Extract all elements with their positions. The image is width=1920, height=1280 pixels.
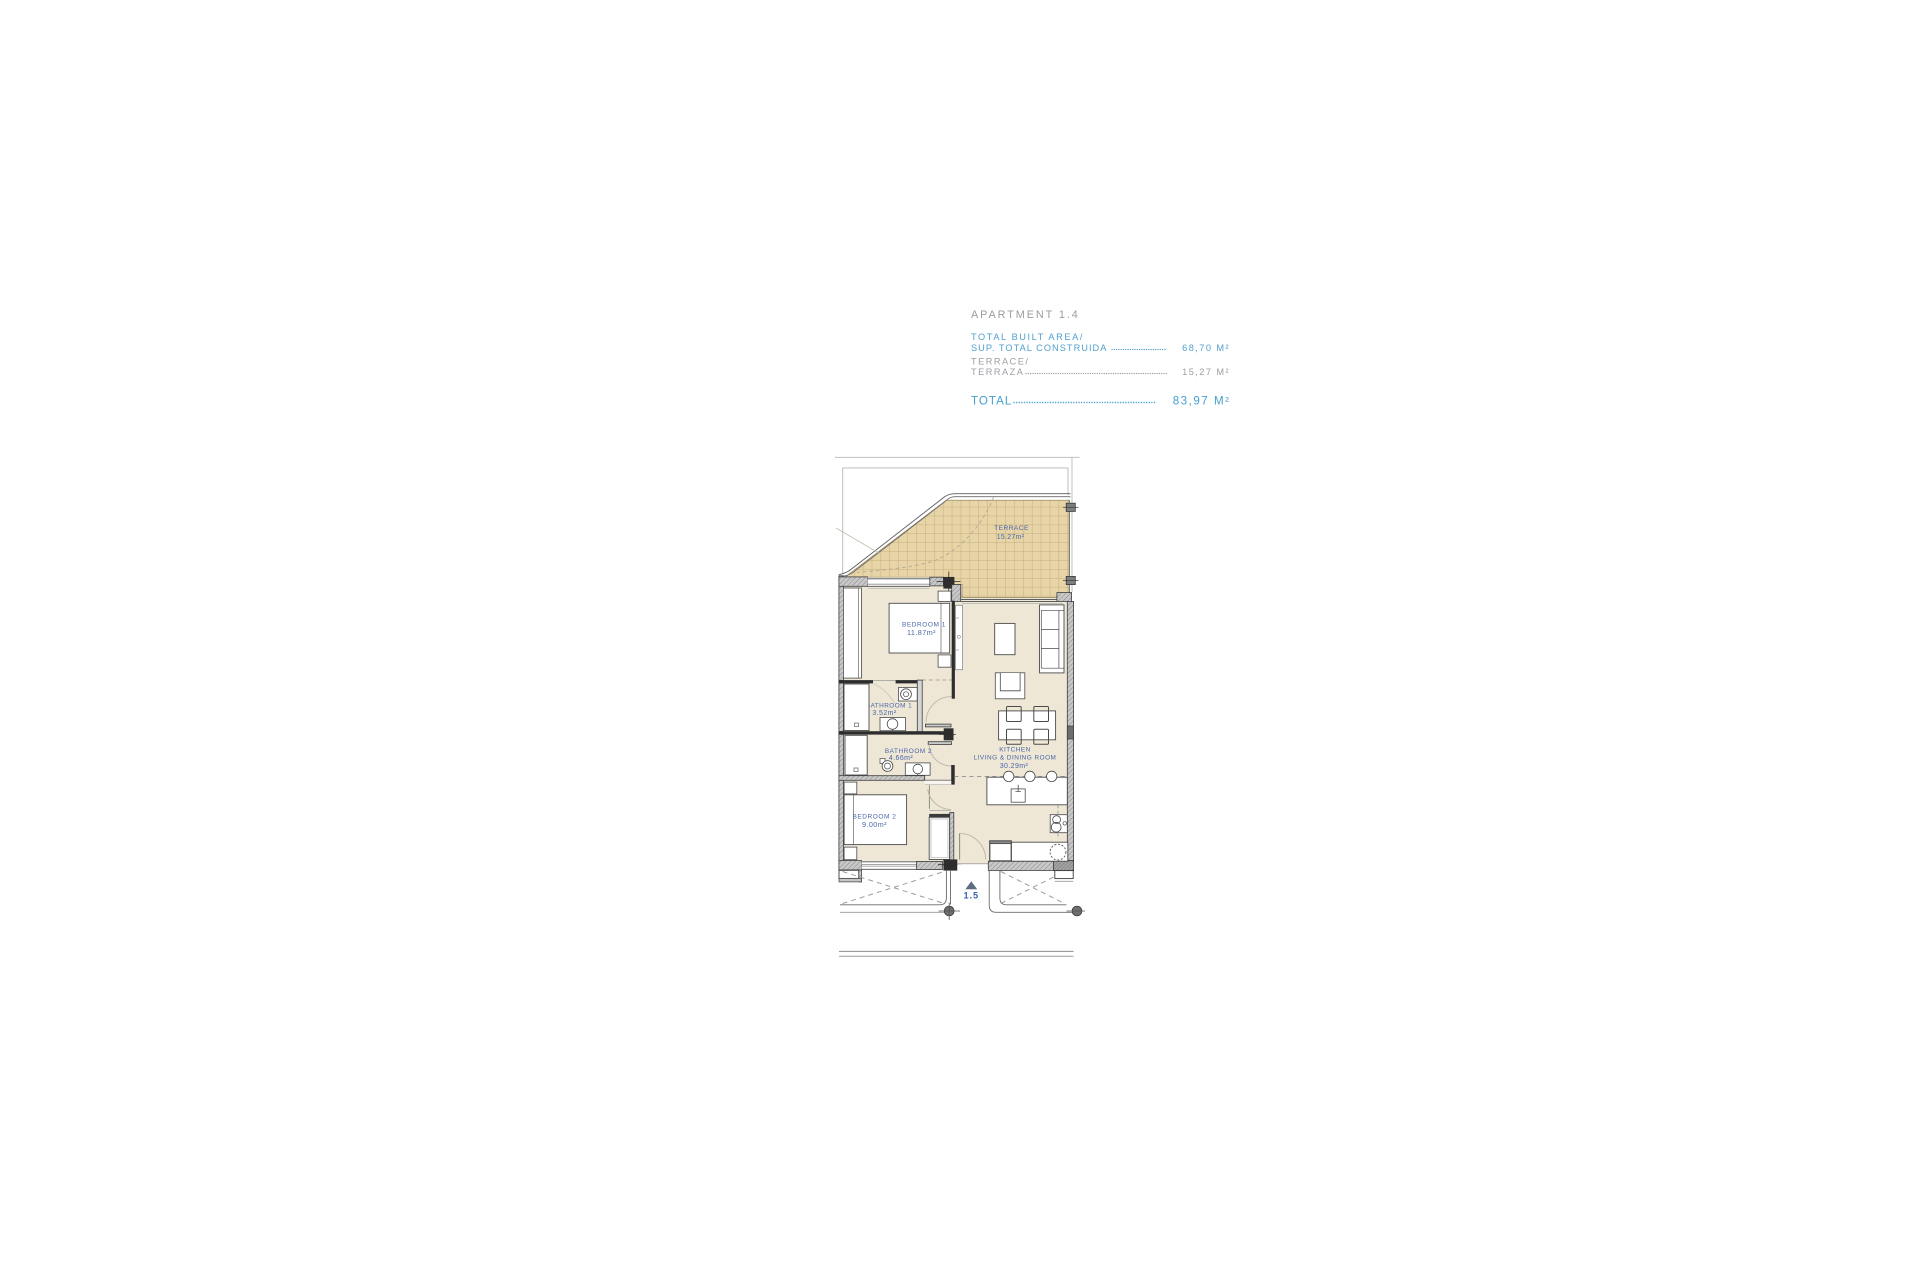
svg-text:APARTMENT 1.4: APARTMENT 1.4 <box>971 309 1080 321</box>
svg-text:TOTAL: TOTAL <box>971 395 1012 408</box>
svg-text:1.5: 1.5 <box>964 891 979 901</box>
svg-text:68,70 M²: 68,70 M² <box>1182 343 1230 353</box>
svg-text:30.29m²: 30.29m² <box>1000 763 1029 770</box>
svg-text:BATHROOM 2: BATHROOM 2 <box>885 748 932 755</box>
svg-text:TERRACE/: TERRACE/ <box>971 357 1029 367</box>
svg-text:83,97 M²: 83,97 M² <box>1173 395 1231 408</box>
svg-text:SUP. TOTAL CONSTRUIDA: SUP. TOTAL CONSTRUIDA <box>971 343 1107 353</box>
svg-text:15.27m²: 15.27m² <box>997 534 1025 541</box>
svg-text:KITCHEN: KITCHEN <box>999 747 1031 754</box>
svg-text:TOTAL BUILT AREA/: TOTAL BUILT AREA/ <box>971 332 1084 342</box>
svg-text:LIVING & DINING ROOM: LIVING & DINING ROOM <box>974 755 1057 762</box>
svg-text:9.00m²: 9.00m² <box>862 820 887 829</box>
svg-text:3.52m²: 3.52m² <box>872 710 896 717</box>
svg-text:15,27 M²: 15,27 M² <box>1182 367 1230 377</box>
svg-text:TERRACE: TERRACE <box>994 525 1029 532</box>
svg-text:11.87m²: 11.87m² <box>907 628 936 637</box>
svg-text:4.66m²: 4.66m² <box>889 755 913 762</box>
svg-text:TERRAZA: TERRAZA <box>971 367 1024 377</box>
svg-text:BATHROOM 1: BATHROOM 1 <box>866 703 912 710</box>
